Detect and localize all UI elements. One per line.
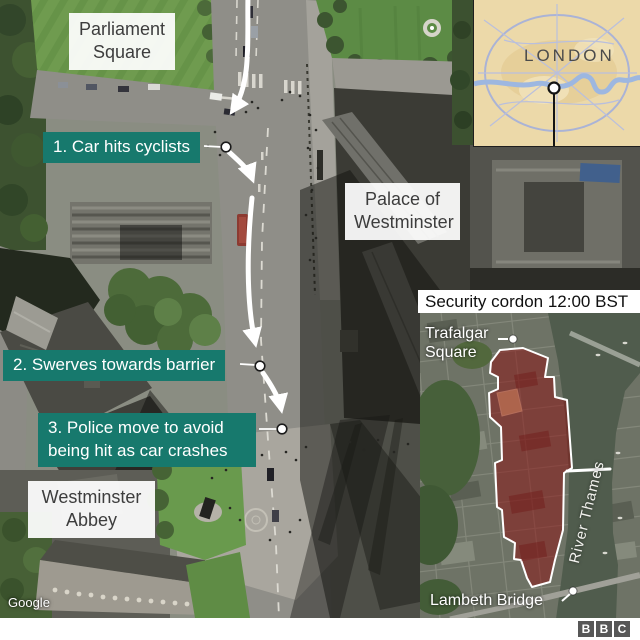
google-watermark: Google (8, 595, 50, 610)
label-step3-police: 3. Police move to avoid being hit as car… (38, 413, 256, 467)
cordon-inset-title: Security cordon 12:00 BST (418, 290, 640, 313)
bbc-logo-block-b1: B (578, 621, 594, 637)
label-parliament-square: Parliament Square (69, 13, 175, 70)
bbc-logo-block-b2: B (596, 621, 612, 637)
news-map-graphic: Parliament Square 1. Car hits cyclists P… (0, 0, 640, 640)
location-marker-icon (549, 83, 560, 94)
inset-london-locator: LONDON (473, 0, 640, 147)
label-lambeth-bridge: Lambeth Bridge (430, 591, 543, 610)
london-label: LONDON (524, 46, 615, 66)
label-palace-of-westminster: Palace of Westminster (345, 183, 460, 240)
london-locator-map (474, 0, 640, 146)
bbc-logo: B B C (578, 621, 630, 637)
label-trafalgar-square: Trafalgar Square (425, 324, 488, 362)
trafalgar-dot (509, 335, 517, 343)
bbc-logo-block-c: C (614, 621, 630, 637)
label-step2-swerves: 2. Swerves towards barrier (3, 350, 225, 381)
bottom-strip (0, 618, 640, 640)
inset-security-cordon: Trafalgar Square River Thames Lambeth Br… (420, 313, 640, 619)
label-step1-car-hits-cyclists: 1. Car hits cyclists (43, 132, 200, 163)
label-westminster-abbey: Westminster Abbey (28, 481, 155, 538)
lambeth-dot (569, 587, 577, 595)
